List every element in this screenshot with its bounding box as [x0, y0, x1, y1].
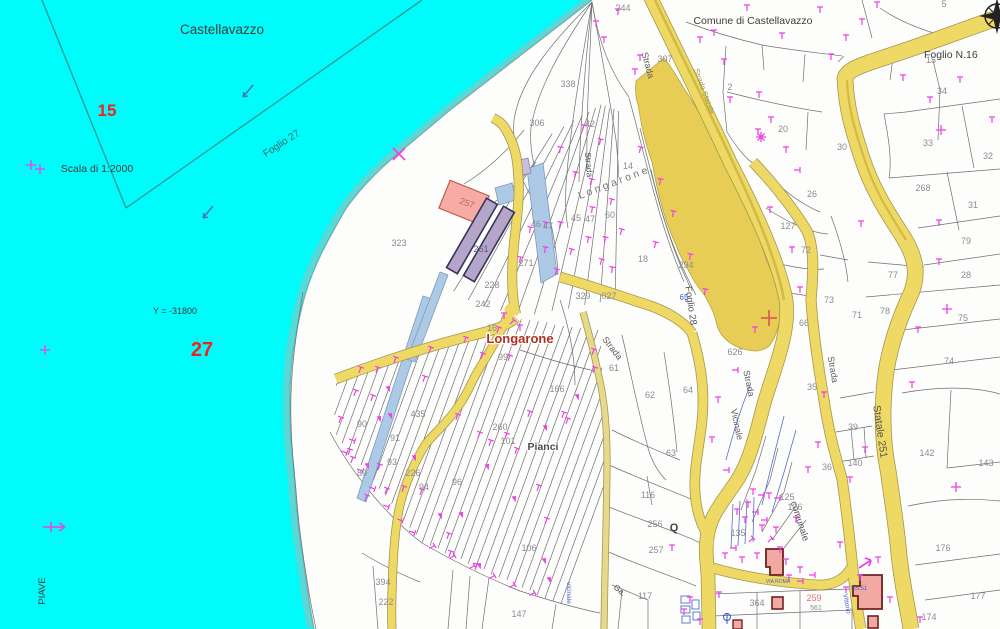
- svg-text:257: 257: [648, 545, 663, 555]
- svg-text:75: 75: [958, 313, 968, 323]
- svg-text:34: 34: [937, 86, 947, 96]
- svg-text:364: 364: [749, 598, 764, 608]
- svg-text:99: 99: [498, 352, 508, 362]
- svg-text:117: 117: [638, 591, 652, 601]
- svg-text:176: 176: [935, 543, 950, 553]
- svg-text:306: 306: [529, 118, 544, 128]
- svg-text:261: 261: [473, 244, 488, 254]
- svg-text:140: 140: [847, 458, 862, 468]
- svg-text:259: 259: [806, 593, 821, 603]
- svg-text:66: 66: [799, 318, 809, 328]
- svg-text:65: 65: [680, 293, 689, 302]
- svg-text:242: 242: [475, 299, 490, 309]
- svg-text:63: 63: [666, 448, 676, 458]
- svg-text:394: 394: [375, 577, 390, 587]
- svg-text:27: 27: [191, 339, 213, 361]
- svg-text:106: 106: [521, 543, 536, 553]
- svg-text:47: 47: [585, 214, 595, 224]
- svg-text:93: 93: [387, 457, 397, 467]
- svg-text:127: 127: [780, 221, 795, 231]
- svg-text:2: 2: [727, 82, 732, 92]
- svg-text:166: 166: [549, 384, 564, 394]
- svg-text:125: 125: [779, 492, 794, 502]
- svg-text:96: 96: [452, 477, 462, 487]
- svg-text:5: 5: [941, 0, 946, 9]
- svg-text:PIAVE: PIAVE: [37, 577, 48, 604]
- svg-text:91: 91: [390, 433, 400, 443]
- svg-text:46: 46: [531, 219, 541, 229]
- svg-text:74: 74: [944, 356, 954, 366]
- svg-text:28: 28: [961, 270, 971, 280]
- svg-text:307: 307: [657, 54, 672, 64]
- svg-text:35: 35: [807, 382, 817, 392]
- svg-text:116: 116: [641, 490, 655, 500]
- svg-text:SS.51: SS.51: [851, 586, 868, 592]
- svg-text:294: 294: [678, 260, 693, 270]
- svg-text:Longarone: Longarone: [486, 331, 553, 346]
- svg-text:78: 78: [880, 306, 890, 316]
- svg-text:16: 16: [487, 323, 497, 333]
- svg-text:vicinale: vicinale: [565, 582, 572, 604]
- svg-text:62: 62: [645, 390, 655, 400]
- svg-text:228: 228: [484, 280, 499, 290]
- svg-text:61: 61: [609, 363, 619, 373]
- svg-text:143: 143: [978, 458, 993, 468]
- svg-text:177: 177: [970, 591, 985, 601]
- svg-text:39: 39: [848, 422, 858, 432]
- svg-text:32: 32: [983, 151, 993, 161]
- svg-text:36: 36: [822, 462, 832, 472]
- svg-text:Q: Q: [670, 522, 679, 534]
- svg-text:Scala di 1:2000: Scala di 1:2000: [61, 163, 134, 175]
- svg-text:142: 142: [919, 448, 934, 458]
- svg-text:323: 323: [391, 238, 406, 248]
- svg-text:Comune di Castellavazzo: Comune di Castellavazzo: [693, 15, 812, 27]
- svg-text:26: 26: [807, 189, 817, 199]
- svg-text:64: 64: [683, 385, 693, 395]
- svg-text:18: 18: [638, 254, 648, 264]
- svg-text:45: 45: [571, 213, 581, 223]
- svg-text:329: 329: [575, 291, 590, 301]
- svg-text:226: 226: [405, 468, 420, 478]
- svg-text:73: 73: [824, 295, 834, 305]
- svg-text:79: 79: [961, 236, 971, 246]
- svg-text:260: 260: [492, 422, 507, 432]
- svg-text:30: 30: [837, 142, 847, 152]
- svg-text:33: 33: [923, 138, 933, 148]
- svg-text:89: 89: [357, 468, 367, 478]
- svg-text:222: 222: [378, 597, 393, 607]
- svg-text:VIA ROMA: VIA ROMA: [766, 579, 791, 585]
- svg-text:126: 126: [787, 502, 802, 512]
- svg-text:42: 42: [585, 119, 595, 129]
- svg-text:027: 027: [601, 291, 616, 301]
- svg-text:561: 561: [810, 605, 822, 612]
- svg-text:94: 94: [419, 482, 429, 492]
- svg-text:71: 71: [852, 310, 862, 320]
- svg-text:47: 47: [543, 221, 553, 231]
- svg-text:77: 77: [888, 270, 898, 280]
- svg-text:Y = -31800: Y = -31800: [153, 306, 197, 316]
- svg-text:31: 31: [968, 200, 978, 210]
- svg-text:Castellavazzo: Castellavazzo: [180, 22, 264, 37]
- svg-text:147: 147: [511, 609, 526, 619]
- svg-text:135: 135: [730, 528, 745, 538]
- svg-text:271: 271: [518, 258, 533, 268]
- svg-text:90: 90: [357, 419, 367, 429]
- svg-text:14: 14: [623, 161, 633, 171]
- svg-text:15: 15: [926, 55, 936, 65]
- svg-text:20: 20: [778, 124, 788, 134]
- svg-text:Pianci: Pianci: [528, 441, 559, 453]
- svg-text:626: 626: [727, 347, 742, 357]
- svg-text:268: 268: [915, 183, 930, 193]
- svg-text:435: 435: [410, 409, 425, 419]
- svg-text:256: 256: [647, 519, 662, 529]
- svg-text:338: 338: [560, 79, 575, 89]
- svg-text:244: 244: [615, 3, 630, 13]
- svg-text:60: 60: [605, 210, 615, 220]
- svg-text:174: 174: [921, 612, 936, 622]
- svg-text:101: 101: [500, 436, 515, 446]
- svg-text:72: 72: [801, 245, 811, 255]
- svg-text:15: 15: [98, 101, 117, 120]
